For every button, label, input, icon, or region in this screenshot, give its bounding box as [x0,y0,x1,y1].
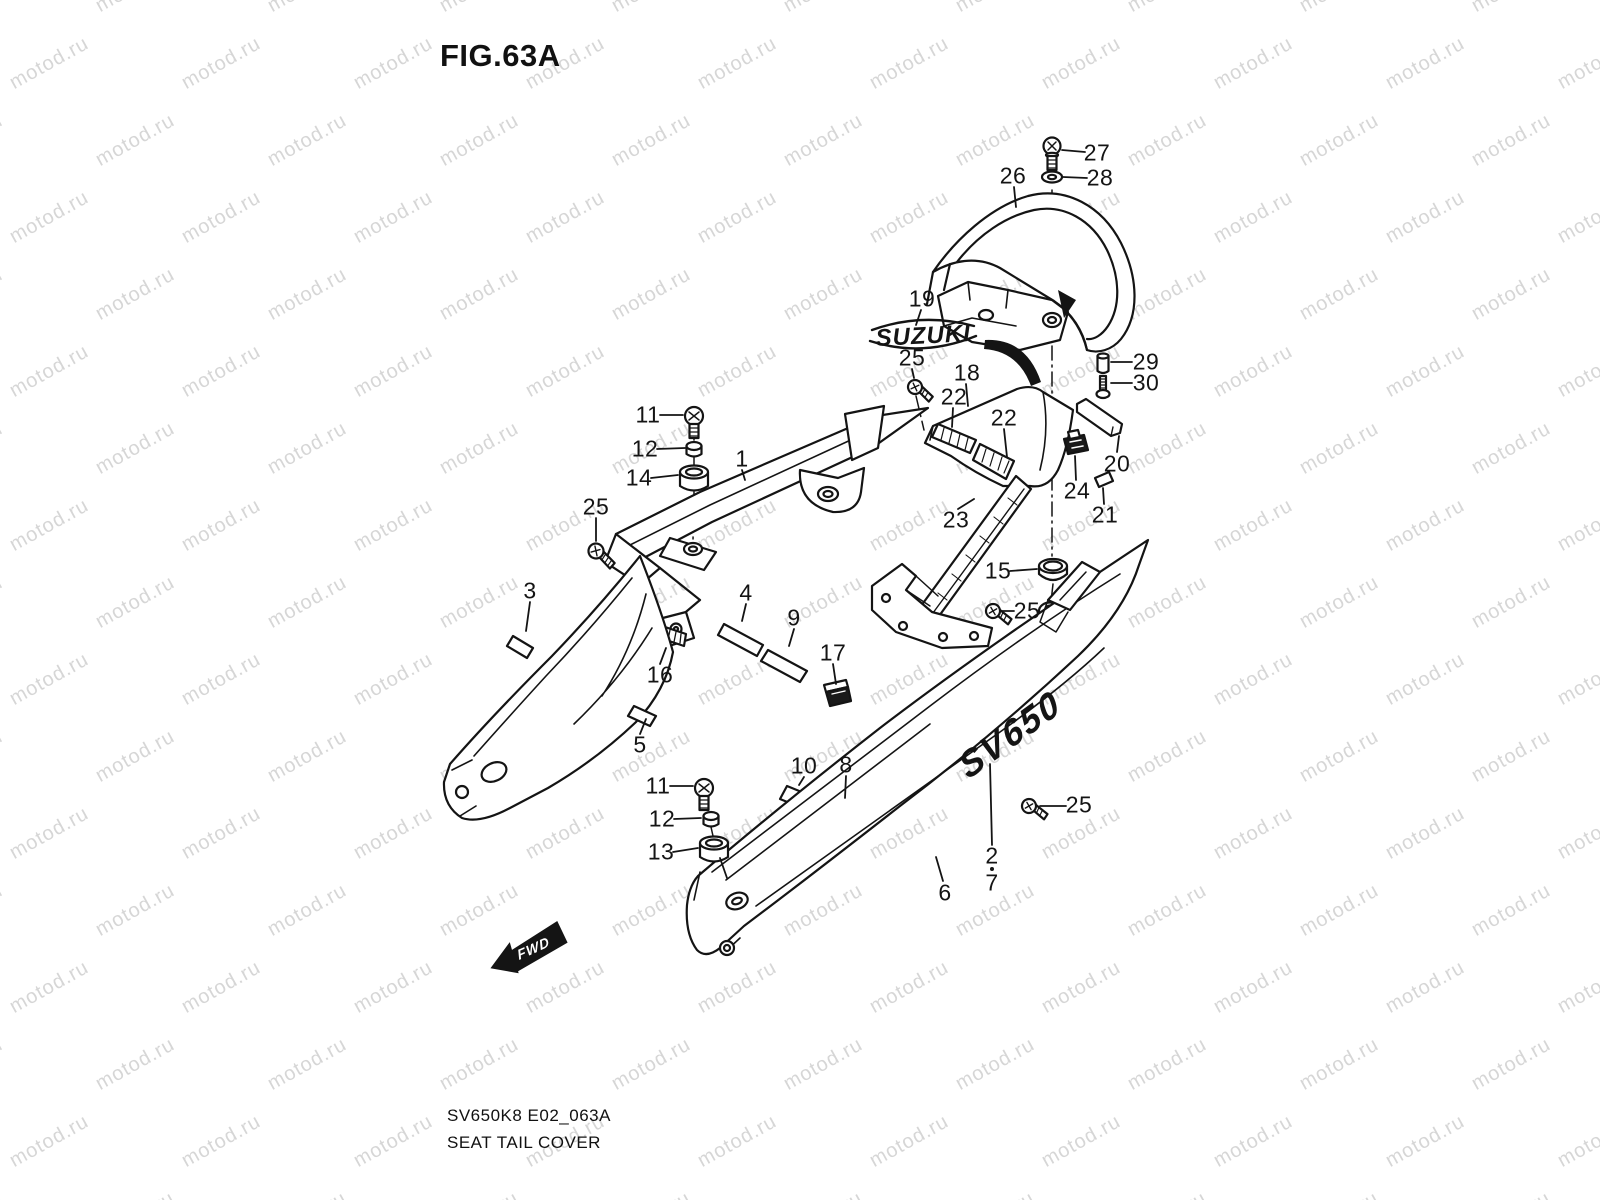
part-label-5: 5 [633,734,646,757]
part-label-12: 12 [649,808,676,831]
part-label-11: 11 [646,775,671,798]
diagram-name: SEAT TAIL COVER [447,1133,611,1153]
part-label-25: 25 [1066,794,1093,817]
part-label-18: 18 [954,362,981,385]
part-label-14: 14 [626,467,653,490]
part-label-17: 17 [820,642,847,665]
part-label-12: 12 [632,438,659,461]
part-label-20: 20 [1104,453,1131,476]
part-label-7: 7 [985,872,998,895]
part-label-25: 25 [1014,600,1041,623]
part-label-3: 3 [523,580,536,603]
part-label-1: 1 [735,448,748,471]
part-label-8: 8 [839,754,852,777]
part-label-10: 10 [791,755,818,778]
model-code: SV650K8 E02_063A [447,1106,611,1126]
part-label-30: 30 [1133,372,1160,395]
part-label-13: 13 [648,841,675,864]
part-label-4: 4 [739,582,752,605]
part-label-11: 11 [636,404,661,427]
part-label-27: 27 [1084,142,1111,165]
part-label-19: 19 [909,288,936,311]
parts-catalog-page: motod.rumotod.rumotod.rumotod.rumotod.ru… [0,0,1600,1200]
part-label-6: 6 [938,882,951,905]
part-label-24: 24 [1064,480,1091,503]
part-label-22: 22 [991,407,1018,430]
footer: SV650K8 E02_063A SEAT TAIL COVER [447,1106,611,1153]
part-label-23: 23 [943,509,970,532]
part-label-2: 2 [985,845,998,868]
part-label-26: 26 [1000,165,1027,188]
part-label-9: 9 [787,607,800,630]
part-label-21: 21 [1092,504,1119,527]
part-label-16: 16 [647,664,674,687]
part-label-22: 22 [941,386,968,409]
part-label-25: 25 [899,347,926,370]
part-label-25: 25 [583,496,610,519]
part-number-labels: 1234567891011111212131415161718192021222… [0,0,1600,1200]
part-label-15: 15 [985,560,1012,583]
part-label-28: 28 [1087,167,1114,190]
